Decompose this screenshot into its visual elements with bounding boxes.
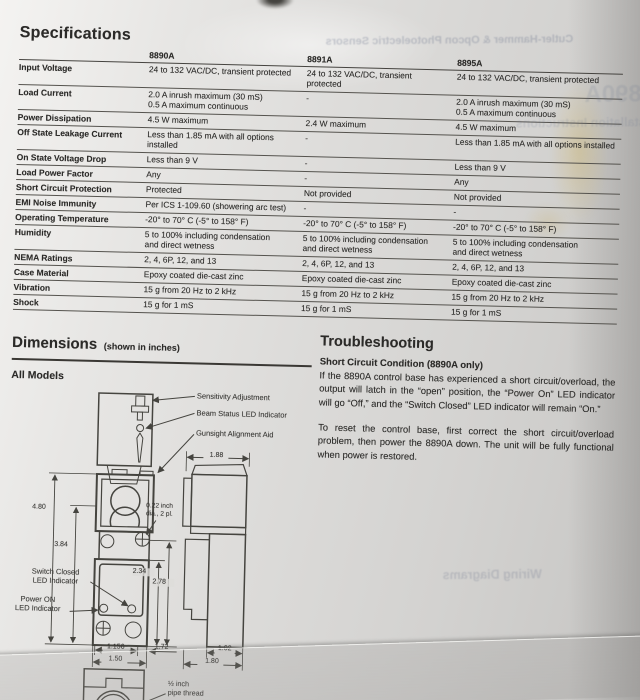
row-value: - bbox=[303, 132, 454, 159]
row-value: Less than 1.85 mA with all options insta… bbox=[453, 136, 622, 164]
dim-side-width: 1.88 bbox=[205, 451, 227, 460]
row-label: Humidity bbox=[14, 225, 143, 252]
callout-switch-closed-led: Switch Closed LED Indicator bbox=[18, 566, 92, 587]
row-value: 24 to 132 VAC/DC, transient protected bbox=[146, 64, 305, 92]
row-value: 15 g for 1 mS bbox=[299, 302, 449, 320]
photo-background: Cutler-Hammer & Opcon Photoelectric Sens… bbox=[0, 0, 640, 700]
dimensions-note: (shown in inches) bbox=[104, 341, 180, 353]
all-models-label: All Models bbox=[11, 369, 311, 388]
row-label: Load Current bbox=[18, 85, 147, 112]
row-value: 15 g for 1 mS bbox=[449, 305, 617, 323]
row-value: - bbox=[304, 92, 455, 119]
dim-hole-note: 0.22 inch dia., 2 pl. bbox=[146, 502, 186, 519]
row-label: Shock bbox=[13, 295, 141, 312]
row-value: 15 g for 1 mS bbox=[141, 298, 299, 316]
dimensions-heading: Dimensions (shown in inches) bbox=[12, 326, 313, 367]
specifications-section: Specifications 8890A 8891A 8895A Input V… bbox=[13, 24, 624, 324]
troubleshooting-paragraph-2: To reset the control base, first correct… bbox=[317, 420, 614, 468]
callout-power-on-led: Power ON LED Indicator bbox=[6, 593, 70, 613]
row-value: 24 to 132 VAC/DC, transient protected bbox=[304, 67, 455, 94]
row-value: 5 to 100% including condensation and dir… bbox=[300, 232, 451, 259]
row-label: Off State Leakage Current bbox=[17, 125, 146, 152]
dimensions-section: Dimensions (shown in inches) All Models bbox=[2, 326, 312, 700]
troubleshooting-paragraph-1: If the 8890A control base has experience… bbox=[319, 368, 616, 416]
bleed-through-text: Wiring Diagrams bbox=[443, 567, 542, 582]
dimensions-title: Dimensions bbox=[12, 334, 97, 353]
paper: Cutler-Hammer & Opcon Photoelectric Sens… bbox=[2, 22, 623, 700]
row-value: Less than 1.85 mA with all options insta… bbox=[145, 128, 304, 156]
bleed-through-text: Installation Instructions bbox=[516, 115, 640, 130]
row-value: 5 to 100% including condensation and dir… bbox=[450, 235, 619, 263]
row-value: 5 to 100% including condensation and dir… bbox=[142, 228, 301, 256]
dim-panel-height: 2.78 bbox=[152, 578, 174, 587]
spec-table-rows: Input Voltage24 to 132 VAC/DC, transient… bbox=[13, 60, 623, 324]
troubleshooting-title: Troubleshooting bbox=[320, 333, 616, 356]
spec-table: 8890A 8891A 8895A Input Voltage24 to 132… bbox=[13, 46, 623, 324]
dim-led-height: 2.34 bbox=[132, 568, 154, 577]
row-value: 2.0 A inrush maximum (30 mS) 0.5 A maxim… bbox=[146, 88, 305, 116]
dim-overall-height: 4.80 bbox=[32, 503, 52, 512]
row-label: Input Voltage bbox=[18, 60, 147, 87]
dim-lens-height: 3.84 bbox=[54, 541, 74, 550]
bleed-through-text: 8890A bbox=[584, 80, 640, 109]
